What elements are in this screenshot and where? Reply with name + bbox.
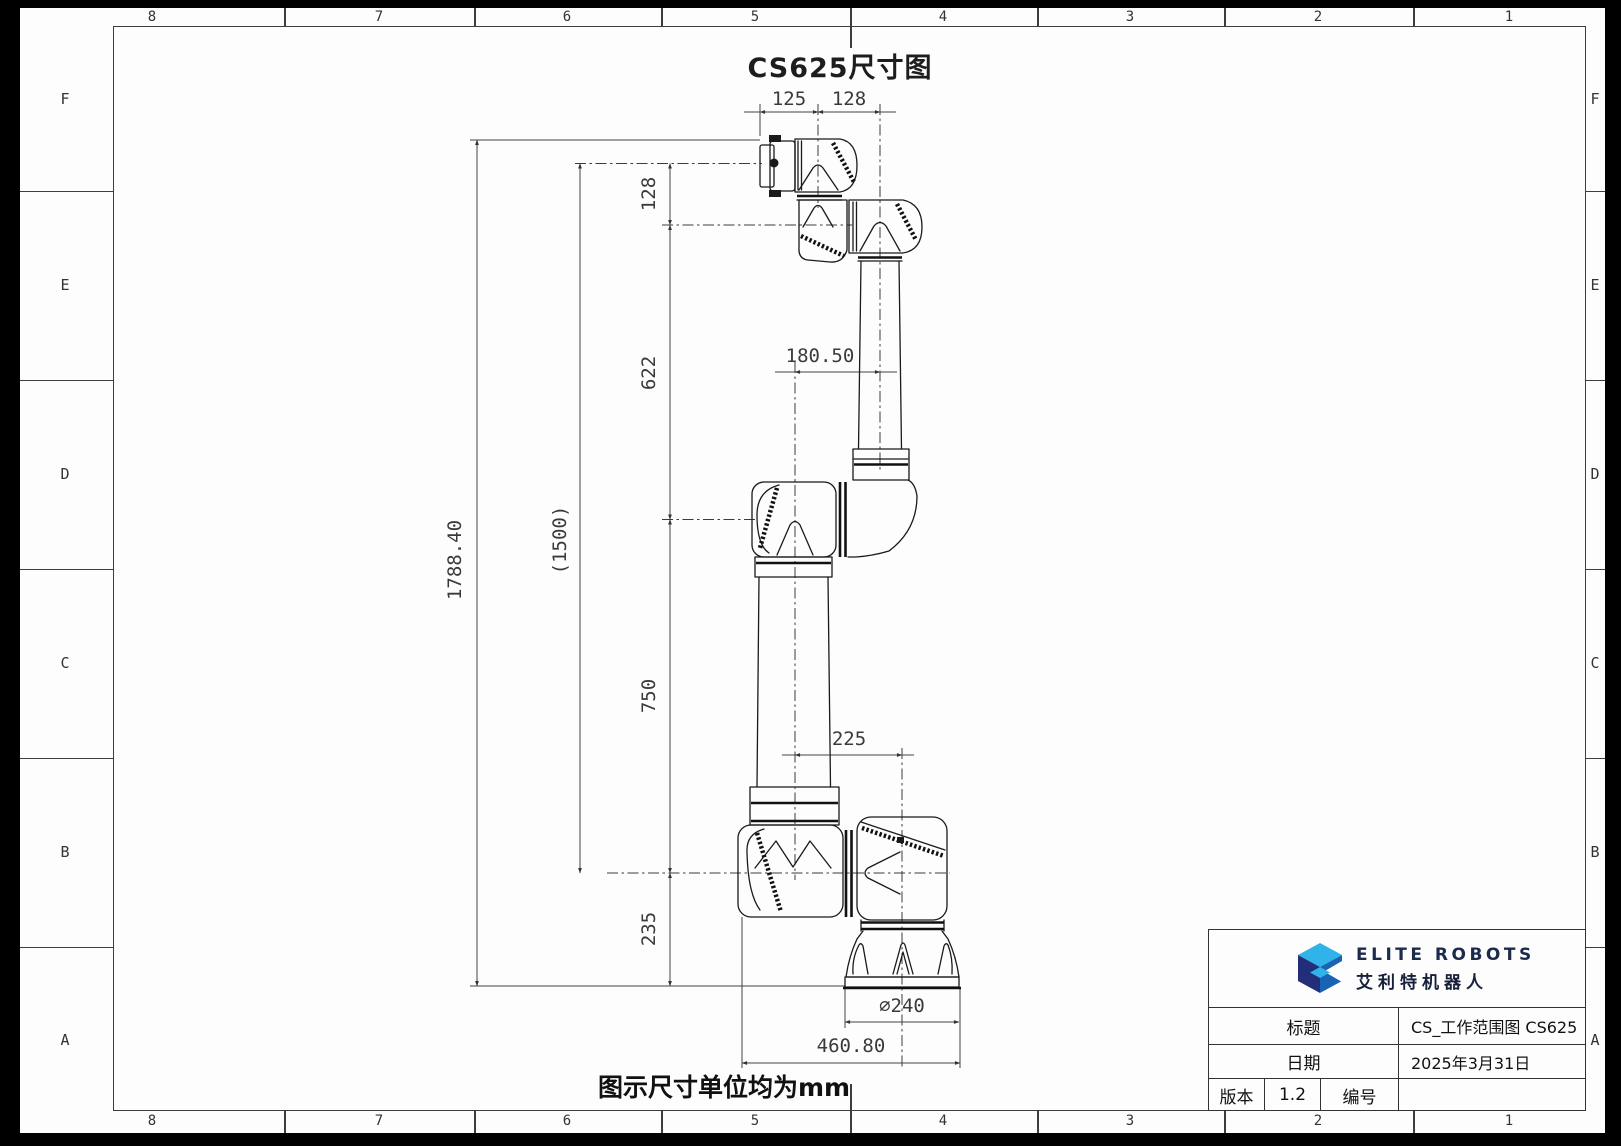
- dim-reach-ref: (1500): [549, 506, 571, 575]
- zone-col-bottom: 5: [735, 1113, 775, 1129]
- dim-upperarm-length: 750: [638, 679, 660, 713]
- dim-wrist-offset-v: 128: [638, 177, 660, 211]
- dim-elbow-offset: 180.50: [786, 345, 855, 367]
- zone-col-top: 3: [1110, 9, 1150, 25]
- dim-base-width: 460.80: [817, 1035, 886, 1057]
- dim-forearm-length: 622: [638, 356, 660, 390]
- zone-row-left: A: [50, 1031, 80, 1049]
- zone-row-left: E: [50, 276, 80, 294]
- zone-col-top: 1: [1489, 9, 1529, 25]
- dim-base-height: 235: [638, 912, 660, 946]
- zone-col-bottom: 2: [1298, 1113, 1338, 1129]
- drawing-sheet: 8 7 6 5 4 3 2 1 8 7 6 5 4 3 2 1 F E D C …: [0, 0, 1621, 1146]
- zone-row-left: B: [50, 843, 80, 861]
- dim-flange-offset: 125: [772, 88, 806, 110]
- zone-col-bottom: 3: [1110, 1113, 1150, 1129]
- zone-row-left: F: [50, 90, 80, 108]
- zone-row-left: D: [50, 465, 80, 483]
- centerlines: [575, 104, 950, 1070]
- zone-col-top: 8: [132, 9, 172, 25]
- title-value: CS_工作范围图 CS625: [1398, 1008, 1587, 1044]
- zone-col-bottom: 8: [132, 1113, 172, 1129]
- brand-name-en: ELITE ROBOTS: [1356, 945, 1535, 965]
- title-block: ELITE ROBOTS 艾利特机器人 标题 CS_工作范围图 CS625 日期…: [1208, 929, 1586, 1111]
- brand-row: ELITE ROBOTS 艾利特机器人: [1209, 930, 1585, 1007]
- zone-col-bottom: 7: [359, 1113, 399, 1129]
- version-value: 1.2: [1264, 1079, 1320, 1111]
- title-row: 标题 CS_工作范围图 CS625: [1209, 1007, 1585, 1044]
- zone-col-bottom: 1: [1489, 1113, 1529, 1129]
- version-label: 版本: [1209, 1079, 1264, 1111]
- zone-col-top: 4: [923, 9, 963, 25]
- date-value: 2025年3月31日: [1398, 1045, 1587, 1078]
- title-label: 标题: [1209, 1008, 1398, 1044]
- elite-robots-logo: [1297, 939, 1343, 997]
- date-label: 日期: [1209, 1045, 1398, 1078]
- dim-shoulder-offset: 225: [832, 728, 866, 750]
- number-value: [1398, 1079, 1587, 1111]
- date-row: 日期 2025年3月31日: [1209, 1044, 1585, 1078]
- zone-col-top: 5: [735, 9, 775, 25]
- brand-name-cn: 艾利特机器人: [1356, 968, 1535, 993]
- zone-col-top: 6: [547, 9, 587, 25]
- version-row: 版本 1.2 编号: [1209, 1078, 1585, 1111]
- dim-base-diameter: ∅240: [879, 995, 925, 1017]
- dim-overall-height: 1788.40: [444, 520, 466, 600]
- zone-col-bottom: 6: [547, 1113, 587, 1129]
- zone-col-top: 7: [359, 9, 399, 25]
- zone-col-bottom: 4: [923, 1113, 963, 1129]
- number-label: 编号: [1320, 1079, 1398, 1111]
- zone-row-left: C: [50, 654, 80, 672]
- robot-outline: [738, 135, 961, 988]
- zone-col-top: 2: [1298, 9, 1338, 25]
- paper: 8 7 6 5 4 3 2 1 8 7 6 5 4 3 2 1 F E D C …: [20, 8, 1605, 1133]
- dim-wrist-offset-h: 128: [832, 88, 866, 110]
